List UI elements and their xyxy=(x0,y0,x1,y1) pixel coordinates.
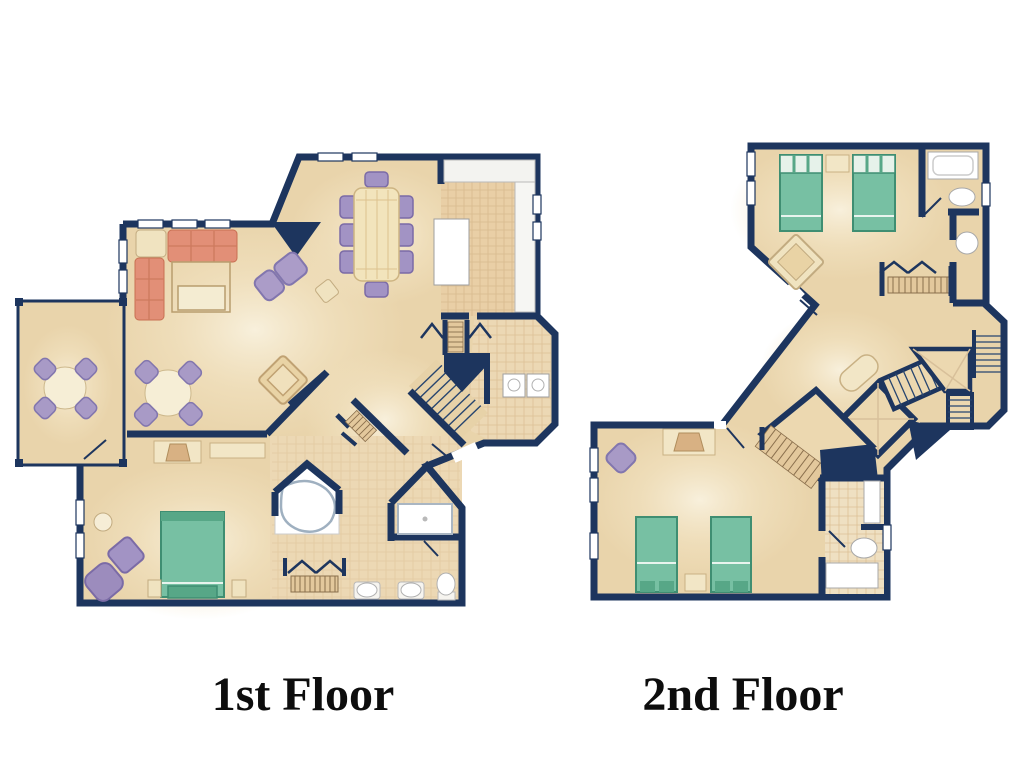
svg-text:2nd Floor: 2nd Floor xyxy=(642,668,843,721)
svg-text:1st Floor: 1st Floor xyxy=(212,668,395,721)
